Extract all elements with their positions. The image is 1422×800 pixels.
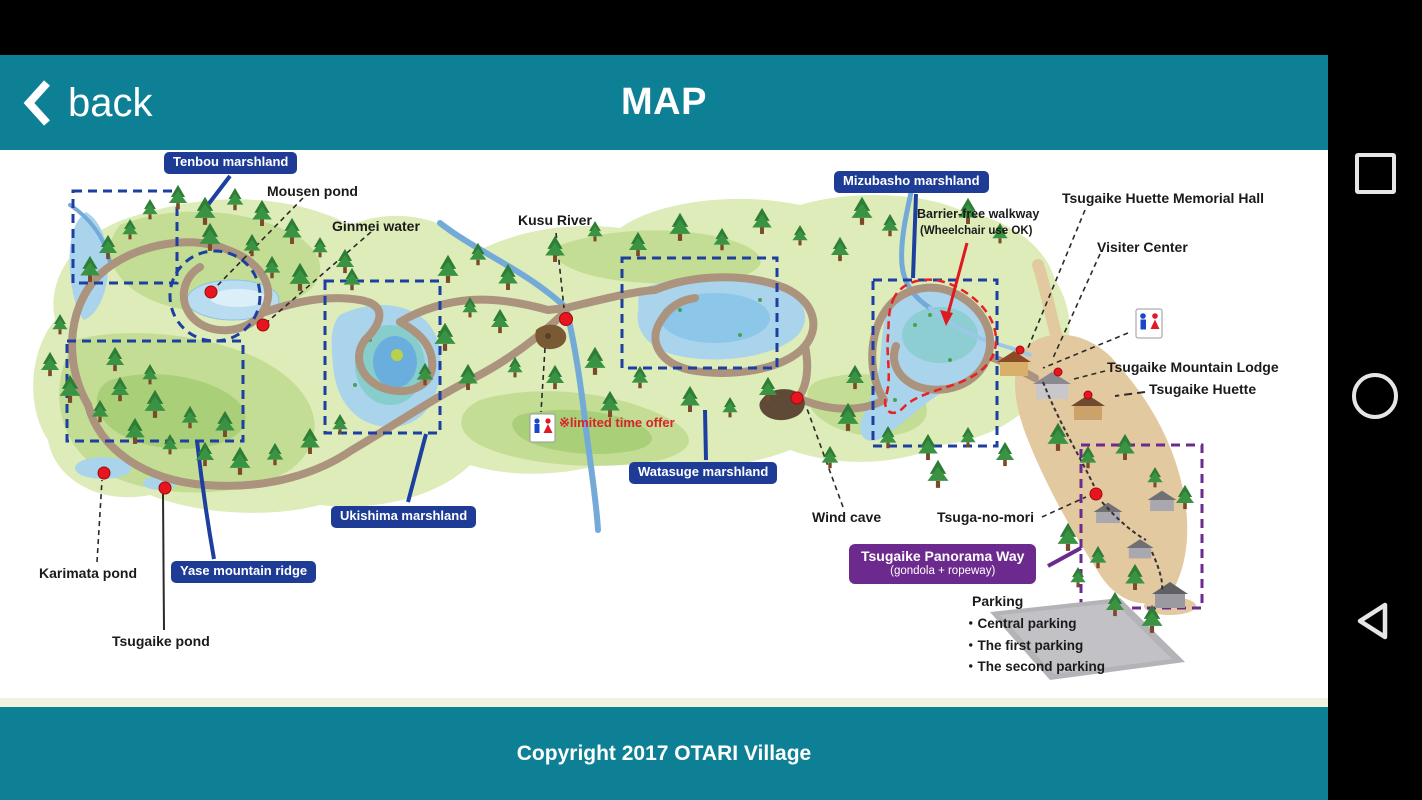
label-mousen-pond: Mousen pond <box>267 184 358 199</box>
label-karimata-pond: Karimata pond <box>39 566 137 581</box>
restroom-icon <box>530 414 555 442</box>
recents-button[interactable] <box>1328 153 1422 194</box>
label-limited-time-offer: ※limited time offer <box>559 416 675 430</box>
status-bar <box>0 0 1328 55</box>
map-area[interactable]: Tenbou marshland Mousen pond Ginmei wate… <box>0 150 1328 707</box>
label-watasuge-marshland: Watasuge marshland <box>629 462 777 484</box>
chevron-left-icon <box>22 77 52 129</box>
parking-list: ・Central parking ・The first parking ・The… <box>964 613 1105 678</box>
label-panorama-way: Tsugaike Panorama Way (gondola + ropeway… <box>849 544 1036 584</box>
label-tsugaike-huette: Tsugaike Huette <box>1149 382 1256 397</box>
label-wheelchair-use-ok: (Wheelchair use OK) <box>920 225 1032 238</box>
label-kusu-river: Kusu River <box>518 213 592 228</box>
label-tsuga-no-mori: Tsuga-no-mori <box>937 510 1034 525</box>
parking-item: ・The first parking <box>964 635 1105 657</box>
label-visitor-center: Visiter Center <box>1097 240 1188 255</box>
label-wind-cave: Wind cave <box>812 510 881 525</box>
label-mountain-lodge: Tsugaike Mountain Lodge <box>1107 360 1279 375</box>
label-memorial-hall: Tsugaike Huette Memorial Hall <box>1062 191 1264 206</box>
parking-item: ・The second parking <box>964 656 1105 678</box>
label-yase-mountain-ridge: Yase mountain ridge <box>171 561 316 583</box>
label-panorama-way-line2: (gondola + ropeway) <box>861 565 1024 579</box>
android-nav-bar <box>1328 0 1422 800</box>
nav-back-button[interactable] <box>1328 598 1422 644</box>
label-barrier-free-walkway: Barrier-free walkway <box>917 208 1039 222</box>
parking-item: ・Central parking <box>964 613 1105 635</box>
circle-icon <box>1352 373 1398 419</box>
label-ginmei-water: Ginmei water <box>332 219 420 234</box>
square-icon <box>1355 153 1396 194</box>
triangle-left-icon <box>1352 598 1398 644</box>
label-panorama-way-line1: Tsugaike Panorama Way <box>861 548 1024 565</box>
label-tenbou-marshland: Tenbou marshland <box>164 152 297 174</box>
app-header: back MAP <box>0 55 1328 150</box>
home-button[interactable] <box>1328 373 1422 419</box>
back-button-label: back <box>68 83 153 123</box>
back-button[interactable]: back <box>22 55 153 150</box>
copyright-text: Copyright 2017 OTARI Village <box>517 742 811 766</box>
label-tsugaike-pond: Tsugaike pond <box>112 634 210 649</box>
label-mizubasho-marshland: Mizubasho marshland <box>834 171 989 193</box>
app-footer: Copyright 2017 OTARI Village <box>0 707 1328 800</box>
label-parking-title: Parking <box>972 594 1023 609</box>
label-ukishima-marshland: Ukishima marshland <box>331 506 476 528</box>
restroom-icon <box>1136 309 1162 338</box>
page-title: MAP <box>0 55 1328 150</box>
app-window: back MAP <box>0 0 1328 800</box>
